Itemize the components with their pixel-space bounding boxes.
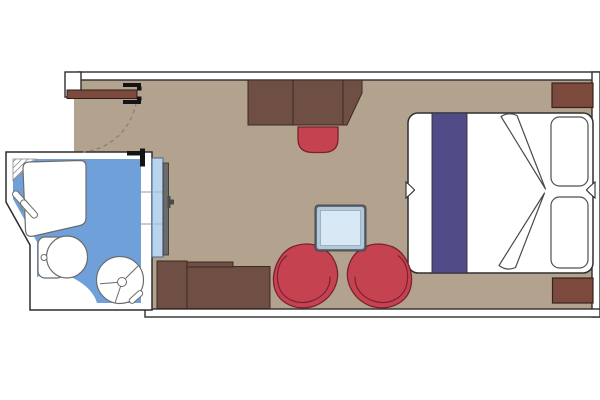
table-top	[321, 211, 361, 246]
floorplan-svg	[0, 0, 600, 400]
toilet	[38, 236, 88, 278]
pillow-top	[551, 117, 588, 186]
sliding-door-rail	[163, 163, 169, 255]
armchair-right	[347, 244, 411, 308]
wall-top	[78, 72, 600, 80]
nightstand-bottom	[553, 278, 594, 303]
dresser-ledge	[187, 262, 233, 267]
dresser-section	[157, 261, 187, 309]
coffee-table	[315, 205, 366, 251]
armchair-left	[273, 244, 337, 308]
bathroom	[6, 152, 152, 310]
nightstand-top	[552, 83, 593, 108]
bed-runner	[432, 113, 467, 273]
pillow-bottom	[551, 197, 588, 268]
vanity-desk	[248, 80, 362, 125]
double-bed	[406, 113, 595, 273]
door-leaf	[67, 90, 137, 99]
sliding-door-panel	[152, 158, 163, 257]
stool	[298, 127, 338, 153]
shower-tub	[23, 161, 86, 237]
desk-section	[293, 80, 343, 125]
dresser-section	[187, 267, 270, 309]
floorplan-canvas	[0, 0, 600, 400]
washbasin	[97, 257, 144, 305]
dresser-unit	[157, 261, 270, 309]
wall-bottom	[145, 309, 600, 317]
desk-section	[248, 80, 293, 125]
